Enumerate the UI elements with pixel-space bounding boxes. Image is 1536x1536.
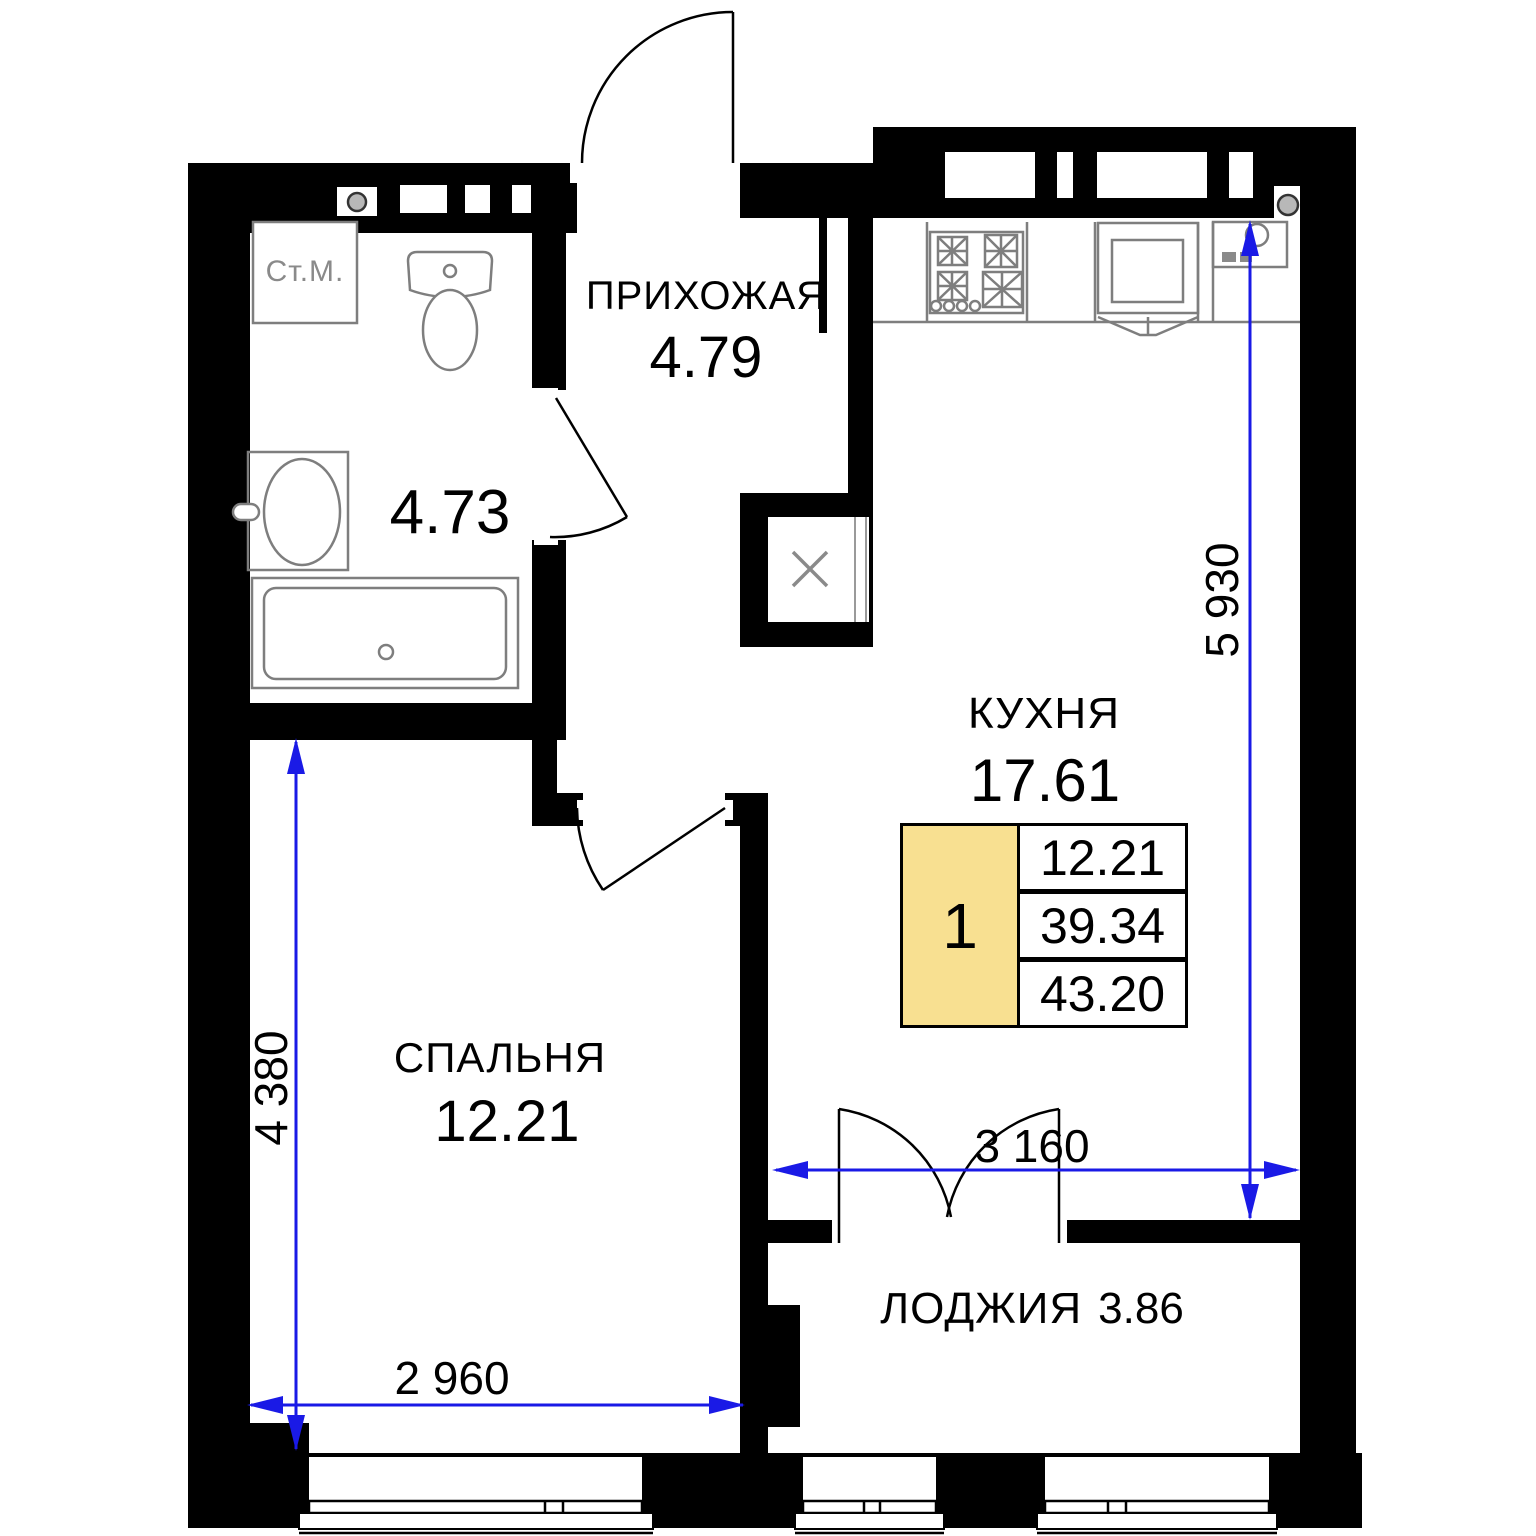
pipe-icon [1278, 195, 1298, 215]
dimension-label-4380: 4 380 [248, 1030, 294, 1145]
dimension-label-2960: 2 960 [394, 1355, 509, 1401]
hallway-name: ПРИХОЖАЯ [586, 276, 826, 316]
legend-area-no-loggia: 39.34 [1017, 891, 1188, 960]
toilet-icon [408, 252, 492, 370]
pipe-icon [348, 193, 366, 211]
washing-machine-label: Ст.М. [266, 257, 345, 287]
vent-shaft-icon [768, 517, 869, 622]
dimension-label-3160: 3 160 [974, 1123, 1089, 1169]
bathroom-area: 4.73 [390, 482, 511, 544]
bedroom-name: СПАЛЬНЯ [394, 1037, 606, 1079]
loggia-window-icon [795, 1453, 944, 1533]
entrance-door-icon [570, 12, 740, 183]
bedroom-area: 12.21 [434, 1093, 579, 1151]
legend-living-area: 12.21 [1017, 823, 1188, 892]
dimension-5930 [1241, 220, 1259, 1220]
kitchen-name: КУХНЯ [968, 692, 1120, 736]
bedroom-window-icon [299, 1453, 653, 1533]
floor-plan: Ст.М. ПРИХОЖАЯ 4.79 4.73 КУХНЯ 17.61 СПА… [0, 0, 1536, 1536]
legend-rooms-count: 1 [900, 823, 1020, 1028]
loggia-label: ЛОДЖИЯ 3.86 [880, 1287, 1184, 1331]
hallway-area: 4.79 [650, 329, 763, 387]
bedroom-door-icon [577, 800, 733, 890]
legend-total-area: 43.20 [1017, 959, 1188, 1028]
kitchen-area: 17.61 [970, 751, 1120, 811]
oven-icon [1098, 223, 1198, 335]
stove-icon [930, 232, 1023, 313]
bathroom-sink-icon [233, 452, 348, 570]
loggia-area: 3.86 [1098, 1287, 1184, 1331]
loggia-name: ЛОДЖИЯ [880, 1287, 1082, 1331]
plan-graphics [0, 0, 1536, 1536]
dimension-label-5930: 5 930 [1199, 542, 1245, 657]
bathroom-door-icon [532, 388, 627, 545]
bathtub-icon [252, 578, 518, 688]
loggia-window-icon [1037, 1453, 1277, 1533]
